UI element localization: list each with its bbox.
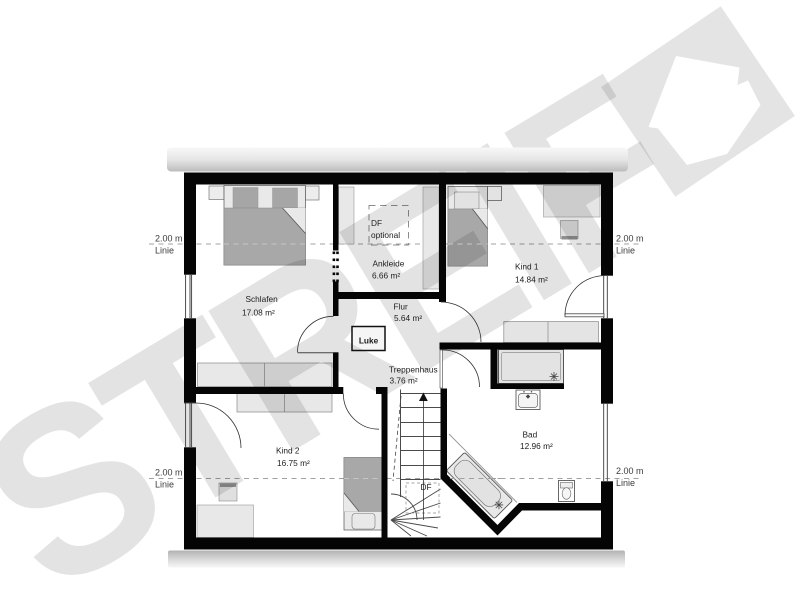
svg-text:6.66 m²: 6.66 m² bbox=[372, 271, 400, 281]
svg-text:Flur: Flur bbox=[394, 302, 409, 312]
svg-text:DF: DF bbox=[371, 218, 382, 228]
svg-text:Bad: Bad bbox=[523, 430, 538, 440]
svg-text:Ankleide: Ankleide bbox=[373, 259, 405, 269]
svg-text:2.00 m: 2.00 m bbox=[616, 234, 644, 244]
svg-text:17.08 m²: 17.08 m² bbox=[242, 308, 275, 318]
svg-text:Linie: Linie bbox=[616, 246, 635, 256]
svg-text:Luke: Luke bbox=[359, 336, 379, 346]
svg-text:16.75 m²: 16.75 m² bbox=[277, 458, 310, 468]
svg-text:Linie: Linie bbox=[155, 246, 174, 256]
svg-text:2.00 m: 2.00 m bbox=[155, 234, 183, 244]
svg-text:Linie: Linie bbox=[155, 480, 174, 490]
svg-text:optional: optional bbox=[371, 230, 400, 240]
svg-text:DF: DF bbox=[421, 482, 432, 492]
svg-text:Kind 2: Kind 2 bbox=[276, 446, 300, 456]
svg-text:Treppenhaus: Treppenhaus bbox=[389, 365, 438, 375]
svg-text:3.76 m²: 3.76 m² bbox=[390, 376, 418, 386]
svg-text:14.84 m²: 14.84 m² bbox=[515, 275, 548, 285]
svg-text:5.64 m²: 5.64 m² bbox=[394, 313, 422, 323]
svg-text:Linie: Linie bbox=[616, 478, 635, 488]
svg-text:Schlafen: Schlafen bbox=[246, 294, 279, 304]
svg-text:2.00 m: 2.00 m bbox=[155, 468, 183, 478]
svg-text:Kind 1: Kind 1 bbox=[515, 262, 539, 272]
svg-text:12.96 m²: 12.96 m² bbox=[520, 441, 553, 451]
svg-text:2.00 m: 2.00 m bbox=[616, 466, 644, 476]
